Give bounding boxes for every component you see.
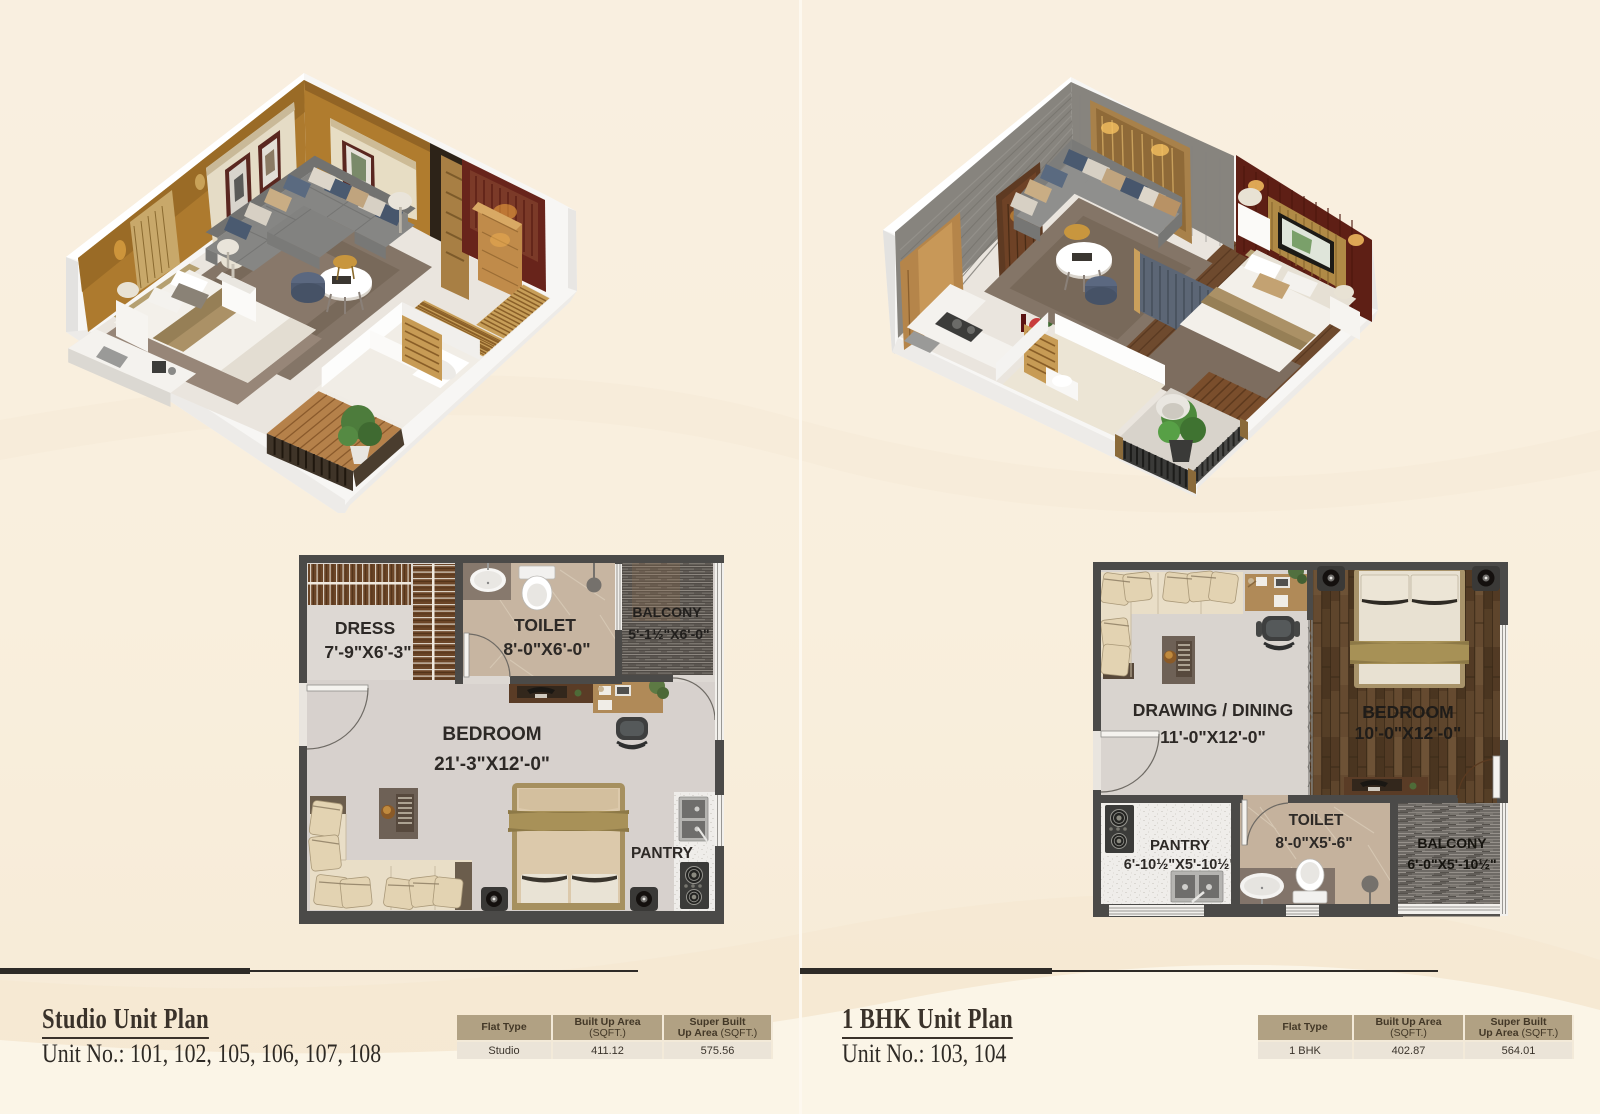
svg-text:PANTRY: PANTRY <box>1150 837 1210 854</box>
svg-text:TOILET: TOILET <box>1289 812 1344 829</box>
svg-text:21'-3"X12'-0": 21'-3"X12'-0" <box>434 754 550 775</box>
svg-text:DRESS: DRESS <box>335 618 395 638</box>
svg-text:5'-1½"X6'-0": 5'-1½"X6'-0" <box>628 626 709 642</box>
svg-text:10'-0"X12'-0": 10'-0"X12'-0" <box>1355 723 1462 743</box>
svg-text:BALCONY: BALCONY <box>1417 835 1487 851</box>
svg-text:BALCONY: BALCONY <box>632 604 702 620</box>
svg-text:11'-0"X12'-0": 11'-0"X12'-0" <box>1160 727 1266 747</box>
svg-text:DRAWING / DINING: DRAWING / DINING <box>1133 700 1293 720</box>
svg-text:PANTRY: PANTRY <box>631 845 694 862</box>
svg-text:7'-9"X6'-3": 7'-9"X6'-3" <box>324 642 411 662</box>
svg-text:TOILET: TOILET <box>514 615 576 635</box>
svg-text:8'-0"X6'-0": 8'-0"X6'-0" <box>503 639 590 659</box>
svg-text:BEDROOM: BEDROOM <box>1362 702 1453 722</box>
svg-text:8'-0"X5'-6": 8'-0"X5'-6" <box>1275 835 1352 852</box>
svg-text:6'-0"X5'-10½": 6'-0"X5'-10½" <box>1407 856 1496 872</box>
svg-text:BEDROOM: BEDROOM <box>442 724 541 745</box>
svg-text:6'-10½"X5'-10½": 6'-10½"X5'-10½" <box>1124 857 1237 873</box>
